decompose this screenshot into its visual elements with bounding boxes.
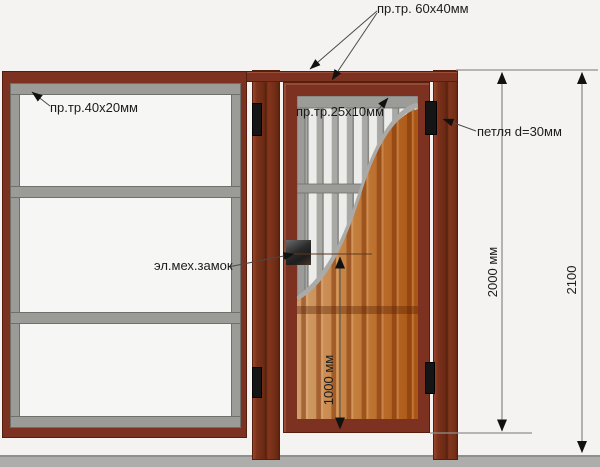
- label-fence-profile: пр.тр.40х20мм: [50, 100, 138, 115]
- electromechanical-lock: [286, 240, 311, 265]
- label-infill-profile: пр.тр.25х10мм: [296, 104, 384, 119]
- fence-rail-middle-1: [10, 186, 241, 198]
- hinge-right-top: [425, 101, 437, 135]
- dimension-lock-height: 1000 мм: [321, 335, 337, 425]
- dimension-gate-height: 2000 мм: [485, 227, 501, 317]
- gate-rail-shadow: [297, 306, 418, 314]
- label-hinge: петля d=30мм: [477, 124, 562, 139]
- leader-frame-profile-1: [310, 11, 377, 69]
- fence-rail-middle-2: [10, 312, 241, 324]
- fence-rail-vertical-right: [231, 83, 241, 428]
- fence-rail-vertical-left: [10, 83, 20, 428]
- gate-drawing: пр.тр. 60х40мм пр.тр.40х20мм пр.тр.25х10…: [0, 0, 600, 467]
- dimension-total-height: 2100: [564, 250, 580, 310]
- label-frame-profile: пр.тр. 60х40мм: [377, 1, 469, 16]
- leader-frame-profile-2: [332, 13, 377, 80]
- label-lock: эл.мех.замок: [154, 258, 233, 273]
- fence-panel-field: [10, 83, 241, 428]
- hinge-left-top: [252, 103, 262, 136]
- hinge-left-bottom: [252, 367, 262, 398]
- hinge-right-bottom: [425, 362, 435, 394]
- fence-rail-top: [10, 83, 241, 95]
- ground-line: [0, 455, 600, 467]
- gate-infill-graphic: [297, 96, 418, 419]
- fence-panel: [2, 71, 247, 438]
- fence-rail-bottom: [10, 416, 241, 428]
